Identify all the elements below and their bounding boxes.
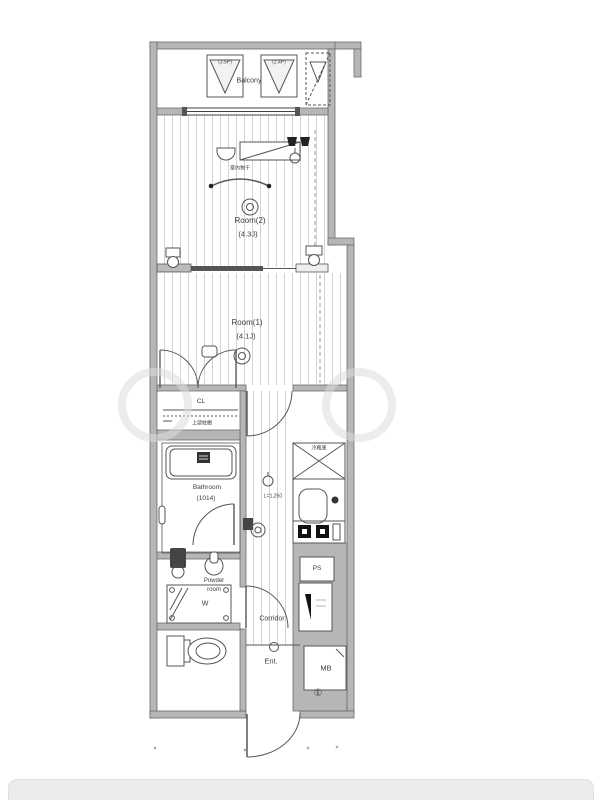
main-window — [182, 107, 300, 116]
mb-label: MB — [320, 664, 331, 672]
bottom-card-edge — [8, 779, 594, 800]
room1-name: Room(1) — [231, 319, 262, 327]
kitchen-fixtures — [243, 443, 345, 543]
closet-note: 上部枕棚 — [192, 422, 212, 427]
corridor-label: Corridor — [259, 616, 284, 623]
room1-size: (4.1J) — [236, 332, 255, 340]
powder-name-line1: Powder — [204, 578, 224, 584]
closet-label: CL — [197, 399, 205, 406]
room2-name: Room(2) — [234, 217, 265, 225]
bathroom-name: Bathroom — [193, 485, 221, 492]
balcony-label: Balcony — [237, 78, 262, 85]
ps-label: PS — [313, 566, 322, 573]
entrance-door-number: ① — [314, 689, 323, 699]
room1-fixtures — [202, 275, 320, 383]
powder-name-line2: room — [207, 587, 221, 593]
room1-door — [247, 391, 292, 436]
room2-fixtures — [209, 130, 315, 263]
bathroom-size: (1014) — [197, 496, 216, 503]
room2-drying-note: 室内物干 — [230, 167, 250, 172]
balcony-left-size: (3.5P) — [218, 61, 232, 66]
washer-label: W — [202, 601, 209, 608]
plan-linework — [0, 0, 600, 800]
rooms-partition — [157, 246, 328, 272]
entrance-label: Ent. — [264, 657, 277, 665]
room2-size: (4.3J) — [238, 230, 257, 238]
balcony-right-size: (2.4P) — [272, 61, 286, 66]
fridge-label: 冷蔵庫 — [311, 447, 326, 452]
kitchen-counter-length: L=1,250 — [264, 495, 282, 500]
floorplan-page: Balcony (3.5P) (2.4P) 室内物干 Room(2) (4.3J… — [0, 0, 600, 800]
